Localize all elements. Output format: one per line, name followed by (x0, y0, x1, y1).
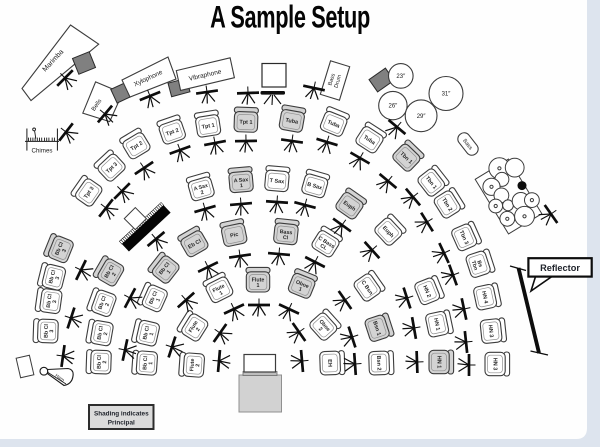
svg-text:Shading indicates: Shading indicates (94, 411, 149, 418)
svg-text:HN 1: HN 1 (435, 356, 441, 369)
svg-text:2: 2 (102, 361, 108, 364)
svg-text:1: 1 (257, 283, 260, 289)
svg-text:Tpt 1: Tpt 1 (239, 119, 252, 125)
svg-text:HN 3: HN 3 (491, 358, 497, 371)
svg-text:23″: 23″ (396, 74, 406, 80)
svg-text:Reflector: Reflector (540, 263, 580, 273)
svg-text:1: 1 (148, 362, 154, 365)
svg-text:31″: 31″ (442, 92, 452, 98)
svg-text:2: 2 (195, 364, 201, 367)
svg-text:EH: EH (326, 359, 332, 367)
svg-text:Bsn 2: Bsn 2 (375, 355, 382, 370)
svg-text:Chimes: Chimes (32, 148, 53, 155)
svg-text:26″: 26″ (388, 104, 398, 110)
svg-text:3: 3 (49, 330, 55, 333)
svg-text:29″: 29″ (417, 114, 427, 120)
svg-text:1: 1 (240, 183, 244, 189)
svg-text:A Sample Setup: A Sample Setup (210, 0, 370, 34)
svg-text:Principal: Principal (108, 420, 135, 427)
